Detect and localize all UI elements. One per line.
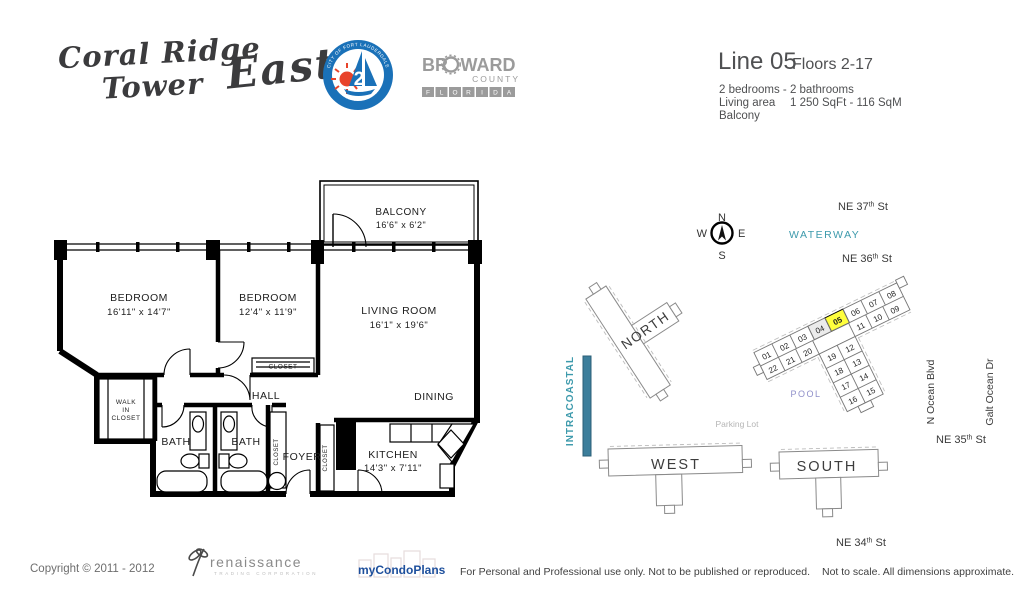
living-room-label: LIVING ROOM	[361, 305, 437, 317]
compass-n: N	[718, 212, 726, 224]
building-title-line2: Tower	[101, 66, 204, 105]
kitchen-label: KITCHEN	[368, 449, 418, 461]
building-east-shape: 01 02 03 04 05 06 07 08 22 21 20 11 10 0…	[746, 276, 949, 446]
living-room-dims: 16'1" x 19'6"	[370, 320, 429, 331]
waterway-label: WATERWAY	[789, 229, 860, 241]
renaissance-logo-text: renaissance	[210, 554, 302, 570]
bedroom1-label: BEDROOM	[110, 292, 168, 304]
intracoastal-waterway-bar	[583, 356, 591, 456]
site-map: N S W E NE 37th St NE 36th St NE 35th St…	[555, 185, 1015, 565]
broward-florida-letterboxes: F L O R I D A	[422, 87, 515, 97]
renaissance-logo-subtext: TRADING CORPORATION	[214, 571, 318, 576]
bath2-label: BATH	[231, 436, 260, 448]
kitchen-dims: 14'3" x 7'11"	[364, 463, 422, 474]
seal-numeral: 2	[354, 69, 365, 90]
street-ne35: NE 35th St	[936, 434, 986, 446]
bath1-label: BATH	[161, 436, 190, 448]
parking-lot-label: Parking Lot	[716, 419, 760, 429]
building-west-shape	[599, 443, 753, 515]
floorplan-page: Coral Ridge Tower East CITY OF FORT LAUD…	[0, 0, 1024, 590]
copyright-text: Copyright © 2011 - 2012	[30, 563, 155, 575]
bedroom2-label: BEDROOM	[239, 292, 297, 304]
unit-balcony-info: Balcony	[719, 110, 760, 122]
bedroom1-dims: 16'11" x 14'7"	[107, 307, 171, 318]
street-galt-ocean-dr: Galt Ocean Dr	[984, 358, 996, 426]
svg-text:D: D	[493, 90, 498, 97]
compass-w: W	[697, 228, 708, 240]
foyer-closet-label: CLOSET	[274, 438, 280, 465]
dining-label: DINING	[414, 391, 454, 403]
svg-text:I: I	[481, 90, 483, 97]
compass-e: E	[738, 228, 745, 240]
street-n-ocean-blvd: N Ocean Blvd	[925, 359, 937, 424]
kitchen-closet-label: CLOSET	[323, 444, 329, 471]
balcony-dims: 16'6" x 6'2"	[376, 220, 426, 230]
bedroom2-closet-label: CLOSET	[268, 364, 297, 371]
unit-living-area-row: Living area1 250 SqFt - 116 SqM	[719, 97, 902, 109]
broward-county-text: COUNTY	[472, 74, 520, 84]
building-south-label: SOUTH	[797, 459, 858, 475]
walkin-closet-line1: WALK	[116, 399, 136, 406]
fort-lauderdale-seal-logo: CITY OF FORT LAUDERDALE VENICE OF AMERIC…	[321, 38, 395, 112]
living-area-value: 1 250 SqFt - 116 SqM	[790, 97, 902, 109]
broward-name-right: WARD	[461, 55, 516, 75]
balcony-label: BALCONY	[375, 207, 426, 218]
floorplan-drawing: BALCONY 16'6" x 6'2" BEDROOM 16'11" x 14…	[40, 165, 500, 535]
svg-text:A: A	[507, 90, 512, 97]
kitchen-wall-block	[336, 421, 356, 470]
walkin-closet-line3: CLOSET	[111, 415, 140, 422]
compass-s: S	[718, 250, 725, 262]
hall-label: HALL	[252, 390, 280, 402]
street-ne34: NE 34th St	[836, 537, 886, 549]
mycondoplans-logo-text: myCondoPlans	[358, 563, 445, 577]
living-area-label: Living area	[719, 97, 790, 109]
unit-rooms-info: 2 bedrooms - 2 bathrooms	[719, 84, 854, 96]
street-ne37: NE 37th St	[838, 201, 888, 213]
window-wall	[54, 240, 482, 264]
compass-icon: N S W E	[697, 212, 746, 262]
street-ne36: NE 36th St	[842, 253, 892, 265]
svg-text:L: L	[440, 90, 444, 97]
unit-floors-label: Floors 2-17	[792, 56, 873, 74]
building-south-shape	[770, 447, 889, 519]
bedroom2-dims: 12'4" x 11'9"	[239, 307, 297, 318]
scale-note: Not to scale. All dimensions approximate…	[822, 566, 1014, 578]
pool-label: POOL	[790, 389, 821, 399]
building-west-label: WEST	[651, 457, 701, 473]
svg-text:R: R	[466, 90, 471, 97]
walkin-closet-line2: IN	[122, 407, 130, 414]
foyer-label: FOYER	[283, 451, 322, 463]
svg-text:F: F	[426, 90, 430, 97]
renaissance-butterfly-icon	[186, 546, 212, 580]
broward-county-logo: BR WARD COUNTY F L O R I D A	[421, 50, 521, 100]
usage-note: For Personal and Professional use only. …	[460, 566, 810, 578]
intracoastal-label: INTRACOASTAL	[565, 356, 576, 446]
svg-text:O: O	[452, 90, 457, 97]
unit-line-label: Line 05	[718, 48, 797, 76]
